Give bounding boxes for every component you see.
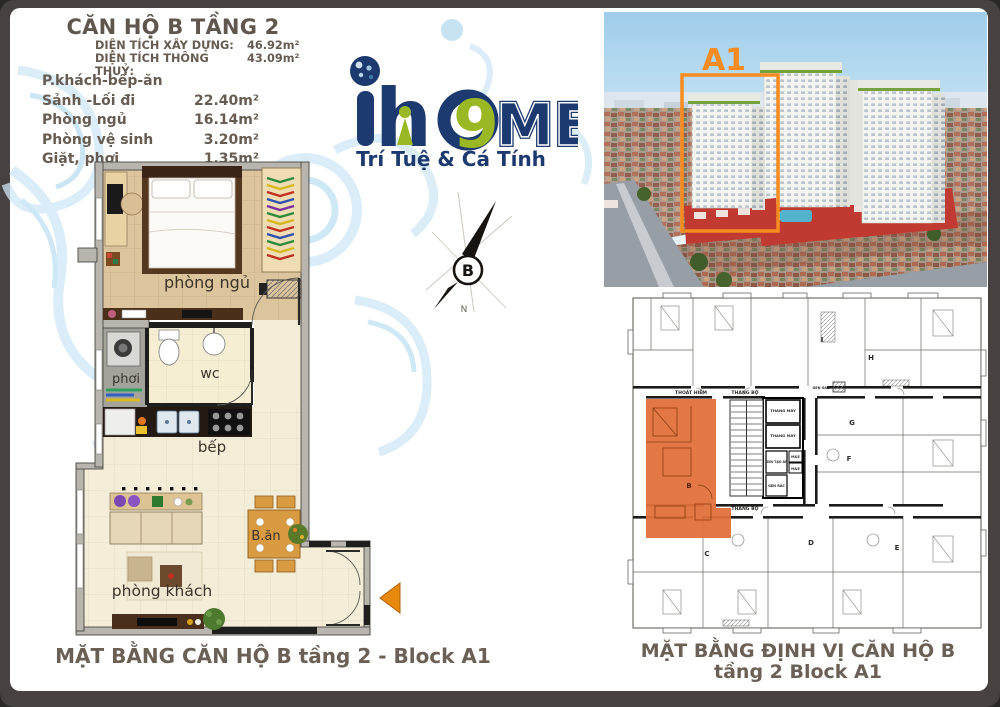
wc-label: wc xyxy=(200,366,219,382)
laundry-label: phơi xyxy=(112,372,140,387)
lift-label: THANG MÁY xyxy=(770,433,796,438)
kitchen-label: bếp xyxy=(198,438,226,456)
me-label: M&E xyxy=(791,467,800,471)
lift-label: THANG MÁY xyxy=(770,408,796,413)
unit-label-d: D xyxy=(808,539,814,547)
caption-keyplan-line1: MẶT BẰNG ĐỊNH VỊ CĂN HỘ B xyxy=(614,641,982,662)
gen-tao-ap-label: GEN TẠO ÁP xyxy=(766,459,788,464)
compass-icon: B N xyxy=(418,188,518,316)
me-label: M&E xyxy=(791,455,800,459)
room-area-row: Phòng vệ sinh3.20m² xyxy=(42,131,259,151)
caption-keyplan: MẶT BẰNG ĐỊNH VỊ CĂN HỘ B tầng 2 Block A… xyxy=(614,641,982,683)
room-area-row: P.khách-bếp-ăn xyxy=(42,72,259,92)
area-label: DIỆN TÍCH XÂY DỰNG: xyxy=(95,39,247,52)
a1-block-label: A1 xyxy=(702,43,746,78)
page-title: CĂN HỘ B TẦNG 2 xyxy=(58,15,288,39)
gen-rac-label: GEN RÁC xyxy=(768,483,785,488)
living-label: phòng khách xyxy=(112,582,212,600)
unit-label-f: F xyxy=(847,455,852,463)
stair-top-label: THANG BỘ xyxy=(731,389,758,396)
room-area-row: Sảnh -Lối đi22.40m² xyxy=(42,92,259,112)
floorplate-keyplan: B THOÁT HIỂM THANG BỘ THANG BỘ THANG MÁY… xyxy=(603,290,995,640)
unit-label-h: H xyxy=(868,354,874,362)
stair-bottom-label: THANG BỘ xyxy=(731,505,758,512)
unit-label-i: I xyxy=(821,336,824,344)
compass-south-letter: N xyxy=(461,305,468,315)
unit-label-b: B xyxy=(686,482,691,490)
brochure-page: CĂN HỘ B TẦNG 2 DIỆN TÍCH XÂY DỰNG: 46.9… xyxy=(0,0,1000,707)
area-line-construction: DIỆN TÍCH XÂY DỰNG: 46.92m² xyxy=(95,39,325,52)
building-aerial-photo: A1 xyxy=(604,12,987,287)
unit-label-g: G xyxy=(849,419,855,427)
bedroom-label: phòng ngủ xyxy=(164,273,250,292)
apartment-floorplan: phòng ngủ phơi wc bếp B.ăn phòng khách xyxy=(62,152,402,652)
compass-north-letter: B xyxy=(462,261,474,280)
gen-gaz-label: GEN GAZ xyxy=(813,386,831,390)
unit-label-e: E xyxy=(895,544,900,552)
room-area-row: Phòng ngủ16.14m² xyxy=(42,111,259,131)
caption-keyplan-line2: tầng 2 Block A1 xyxy=(614,662,982,683)
entry-arrow-icon xyxy=(380,583,400,613)
unit-label-c: C xyxy=(704,550,709,558)
area-value: 46.92m² xyxy=(247,39,299,52)
caption-apartment-plan: MẶT BẰNG CĂN HỘ B tầng 2 - Block A1 xyxy=(38,644,508,668)
dining-label: B.ăn xyxy=(251,529,280,544)
